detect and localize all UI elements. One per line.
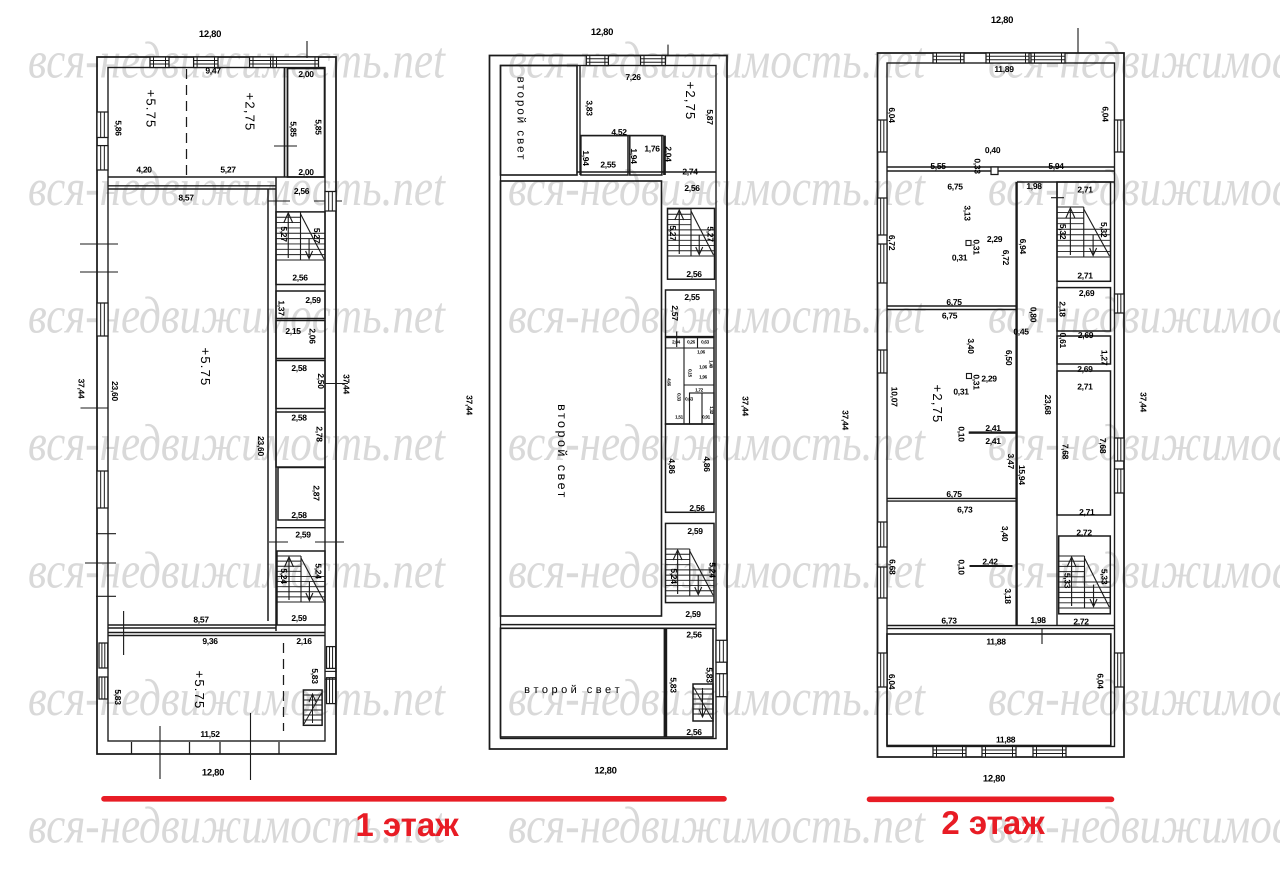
svg-text:+5.75: +5.75 <box>198 348 213 387</box>
svg-text:0,26: 0,26 <box>687 340 695 345</box>
svg-text:5,32: 5,32 <box>1099 222 1109 238</box>
svg-text:второй свет: второй свет <box>555 404 569 500</box>
svg-text:5,27: 5,27 <box>220 164 236 174</box>
svg-text:5,33: 5,33 <box>1063 573 1073 589</box>
svg-text:2,04: 2,04 <box>663 146 673 162</box>
svg-text:5,83: 5,83 <box>113 689 123 705</box>
svg-text:5,83: 5,83 <box>310 668 320 684</box>
svg-text:0,10: 0,10 <box>956 426 966 442</box>
svg-text:2,56: 2,56 <box>689 503 705 513</box>
svg-text:+2,75: +2,75 <box>930 385 945 424</box>
svg-text:5,87: 5,87 <box>705 109 715 125</box>
svg-text:3,40: 3,40 <box>966 338 976 354</box>
svg-text:1,37: 1,37 <box>276 300 286 316</box>
svg-text:второй свет: второй свет <box>515 77 527 162</box>
svg-text:2,00: 2,00 <box>298 69 314 79</box>
svg-text:0,15: 0,15 <box>688 369 693 377</box>
svg-text:1,96: 1,96 <box>699 375 707 380</box>
svg-text:5,24: 5,24 <box>669 568 679 584</box>
svg-text:2,59: 2,59 <box>291 613 307 623</box>
svg-text:2,57: 2,57 <box>670 305 680 321</box>
svg-text:2,56: 2,56 <box>686 269 702 279</box>
svg-text:2,71: 2,71 <box>1077 270 1093 280</box>
svg-text:вся-недвижимость.net: вся-недвижимость.net <box>508 160 926 217</box>
svg-text:2,55: 2,55 <box>600 159 616 169</box>
svg-text:37,44: 37,44 <box>341 374 351 394</box>
svg-text:12,80: 12,80 <box>991 15 1013 26</box>
svg-text:2,56: 2,56 <box>686 727 702 737</box>
svg-text:37,44: 37,44 <box>1138 392 1148 412</box>
svg-text:5,27: 5,27 <box>279 226 289 242</box>
svg-text:2,59: 2,59 <box>295 529 311 539</box>
svg-text:11,52: 11,52 <box>200 729 220 739</box>
svg-text:1,27: 1,27 <box>1100 350 1110 366</box>
svg-text:6,72: 6,72 <box>1001 250 1011 266</box>
svg-text:2,58: 2,58 <box>291 412 307 422</box>
svg-text:2,16: 2,16 <box>296 636 312 646</box>
svg-text:0,45: 0,45 <box>1013 326 1029 336</box>
svg-text:4,86: 4,86 <box>667 458 677 474</box>
svg-text:1,94: 1,94 <box>629 148 639 164</box>
svg-text:вся-недвижимость.net: вся-недвижимость.net <box>28 415 446 472</box>
svg-text:2,59: 2,59 <box>305 295 321 305</box>
svg-text:5,24: 5,24 <box>279 568 289 584</box>
svg-text:2,41: 2,41 <box>985 436 1001 446</box>
svg-text:6,75: 6,75 <box>946 489 962 499</box>
svg-text:2 этаж: 2 этаж <box>941 804 1045 841</box>
svg-text:12,80: 12,80 <box>202 767 224 778</box>
svg-text:0,33: 0,33 <box>677 393 682 401</box>
svg-text:6,04: 6,04 <box>887 674 897 690</box>
svg-text:вся-недвижимость.net: вся-недвижимость.net <box>28 543 446 600</box>
svg-text:15,94: 15,94 <box>1017 465 1027 485</box>
svg-text:2,69: 2,69 <box>1079 288 1095 298</box>
svg-text:3,18: 3,18 <box>1003 588 1013 604</box>
svg-text:1,06: 1,06 <box>697 350 705 355</box>
svg-text:37,44: 37,44 <box>740 396 750 416</box>
svg-text:11,89: 11,89 <box>994 64 1014 74</box>
svg-text:2,18: 2,18 <box>1057 301 1067 317</box>
svg-text:5,86: 5,86 <box>113 120 123 136</box>
svg-text:5,83: 5,83 <box>668 677 678 693</box>
svg-text:6,75: 6,75 <box>946 297 962 307</box>
svg-text:вся-недвижимость.net: вся-недвижимость.net <box>28 670 446 727</box>
svg-text:+5.75: +5.75 <box>144 90 159 129</box>
svg-text:0,63: 0,63 <box>701 340 709 345</box>
svg-text:5,24: 5,24 <box>313 563 323 579</box>
svg-text:6,04: 6,04 <box>1100 106 1110 122</box>
svg-text:0,31: 0,31 <box>971 239 981 255</box>
svg-text:23,60: 23,60 <box>110 381 120 401</box>
svg-text:23,60: 23,60 <box>256 436 266 456</box>
svg-text:1,94: 1,94 <box>581 150 591 166</box>
svg-text:2,29: 2,29 <box>981 373 997 383</box>
svg-text:3,47: 3,47 <box>1006 454 1016 470</box>
svg-text:1,40: 1,40 <box>709 360 714 368</box>
svg-text:2,58: 2,58 <box>291 510 307 520</box>
svg-text:4,66: 4,66 <box>667 378 672 386</box>
svg-text:2,56: 2,56 <box>684 183 700 193</box>
svg-text:4,20: 4,20 <box>136 164 152 174</box>
svg-text:+2,75: +2,75 <box>683 82 698 121</box>
svg-text:12,80: 12,80 <box>983 773 1005 784</box>
svg-text:2,00: 2,00 <box>298 167 314 177</box>
svg-text:0,63: 0,63 <box>685 397 693 402</box>
svg-text:2,55: 2,55 <box>684 292 700 302</box>
svg-text:6,73: 6,73 <box>957 504 973 514</box>
svg-text:5,24: 5,24 <box>707 562 717 578</box>
svg-text:2,06: 2,06 <box>307 328 317 344</box>
svg-text:9,47: 9,47 <box>205 65 221 75</box>
svg-text:4,86: 4,86 <box>702 456 712 472</box>
svg-text:2,56: 2,56 <box>292 272 308 282</box>
svg-text:2,04: 2,04 <box>672 340 680 345</box>
svg-text:5,27: 5,27 <box>312 228 322 244</box>
svg-text:7,68: 7,68 <box>1098 438 1108 454</box>
svg-text:3,13: 3,13 <box>962 205 972 221</box>
svg-text:5,55: 5,55 <box>930 161 946 171</box>
svg-text:1,06: 1,06 <box>699 365 707 370</box>
svg-text:6,94: 6,94 <box>1018 239 1028 255</box>
svg-text:2,59: 2,59 <box>687 526 703 536</box>
svg-text:вся-недвижимость.net: вся-недвижимость.net <box>988 670 1280 727</box>
svg-text:5,85: 5,85 <box>288 121 298 137</box>
svg-text:в т о р о й с в е т: в т о р о й с в е т <box>524 684 620 696</box>
svg-text:1,76: 1,76 <box>644 143 660 153</box>
svg-text:2,42: 2,42 <box>982 556 998 566</box>
svg-text:0,91: 0,91 <box>702 415 710 420</box>
svg-text:2,71: 2,71 <box>1077 184 1093 194</box>
svg-text:9,36: 9,36 <box>202 636 218 646</box>
svg-text:0,40: 0,40 <box>985 145 1001 155</box>
svg-text:1,32: 1,32 <box>709 406 714 414</box>
svg-text:37,44: 37,44 <box>840 410 850 430</box>
svg-text:5,27: 5,27 <box>668 225 678 241</box>
svg-text:1,72: 1,72 <box>695 388 703 393</box>
svg-text:1,98: 1,98 <box>1030 615 1046 625</box>
svg-text:6,75: 6,75 <box>947 181 963 191</box>
svg-text:6,75: 6,75 <box>942 310 958 320</box>
svg-text:2,56: 2,56 <box>686 629 702 639</box>
svg-text:5,94: 5,94 <box>1048 161 1064 171</box>
svg-text:2,50: 2,50 <box>316 373 326 389</box>
svg-text:вся-недвижимость.net: вся-недвижимость.net <box>988 415 1280 472</box>
svg-text:вся-недвижимость.net: вся-недвижимость.net <box>28 288 446 345</box>
svg-text:6,73: 6,73 <box>941 615 957 625</box>
svg-text:вся-недвижимость.net: вся-недвижимость.net <box>508 798 926 855</box>
svg-text:37,44: 37,44 <box>76 379 86 399</box>
svg-text:6,04: 6,04 <box>887 107 897 123</box>
svg-text:вся-недвижимость.net: вся-недвижимость.net <box>28 33 446 90</box>
svg-text:2,71: 2,71 <box>1079 507 1095 517</box>
svg-text:12,80: 12,80 <box>594 765 616 776</box>
svg-text:0,80: 0,80 <box>1028 307 1038 323</box>
svg-text:0,31: 0,31 <box>971 374 981 390</box>
svg-text:6,72: 6,72 <box>887 235 897 251</box>
svg-text:2,59: 2,59 <box>685 609 701 619</box>
svg-text:0,61: 0,61 <box>1058 333 1068 349</box>
svg-text:5,32: 5,32 <box>1058 224 1068 240</box>
svg-text:0,31: 0,31 <box>953 386 969 396</box>
svg-text:2,69: 2,69 <box>1078 330 1094 340</box>
svg-text:7,26: 7,26 <box>625 72 641 82</box>
svg-text:10,07: 10,07 <box>890 387 900 407</box>
svg-text:0,33: 0,33 <box>972 158 982 174</box>
svg-text:+2,75: +2,75 <box>243 93 258 132</box>
svg-text:2,71: 2,71 <box>1077 381 1093 391</box>
svg-text:вся-недвижимость.net: вся-недвижимость.net <box>988 543 1280 600</box>
svg-text:6,68: 6,68 <box>887 559 897 575</box>
svg-text:2,29: 2,29 <box>987 234 1003 244</box>
svg-text:2,15: 2,15 <box>285 326 301 336</box>
svg-text:5,33: 5,33 <box>1100 569 1110 585</box>
svg-text:2,87: 2,87 <box>311 485 321 501</box>
svg-text:0,10: 0,10 <box>956 559 966 575</box>
svg-text:12,80: 12,80 <box>199 29 221 40</box>
svg-text:2,56: 2,56 <box>294 186 310 196</box>
svg-text:23,68: 23,68 <box>1043 395 1053 415</box>
svg-text:6,50: 6,50 <box>1004 350 1014 366</box>
svg-text:8,57: 8,57 <box>178 192 194 202</box>
svg-text:12,80: 12,80 <box>591 27 613 38</box>
svg-text:2,58: 2,58 <box>291 363 307 373</box>
svg-text:3,83: 3,83 <box>584 100 594 116</box>
svg-text:2,78: 2,78 <box>314 426 324 442</box>
svg-text:8,57: 8,57 <box>193 614 209 624</box>
svg-text:37,44: 37,44 <box>464 395 474 415</box>
svg-text:вся-недвижимость.net: вся-недвижимость.net <box>508 415 926 472</box>
svg-text:1 этаж: 1 этаж <box>355 806 459 843</box>
svg-text:11,88: 11,88 <box>996 734 1016 744</box>
svg-text:+5.75: +5.75 <box>192 671 207 710</box>
svg-text:0,31: 0,31 <box>952 252 968 262</box>
svg-text:5,83: 5,83 <box>704 667 714 683</box>
svg-text:7,68: 7,68 <box>1061 444 1071 460</box>
svg-text:11,88: 11,88 <box>986 636 1006 646</box>
svg-text:2,69: 2,69 <box>1077 364 1093 374</box>
svg-text:5,27: 5,27 <box>705 226 715 242</box>
svg-text:вся-недвижимость.net: вся-недвижимость.net <box>508 288 926 345</box>
svg-text:1,51: 1,51 <box>675 415 683 420</box>
svg-text:5,85: 5,85 <box>313 119 323 135</box>
svg-text:3,40: 3,40 <box>1000 526 1010 542</box>
svg-text:6,04: 6,04 <box>1095 673 1105 689</box>
svg-text:вся-недвижимость.net: вся-недвижимость.net <box>508 33 926 90</box>
